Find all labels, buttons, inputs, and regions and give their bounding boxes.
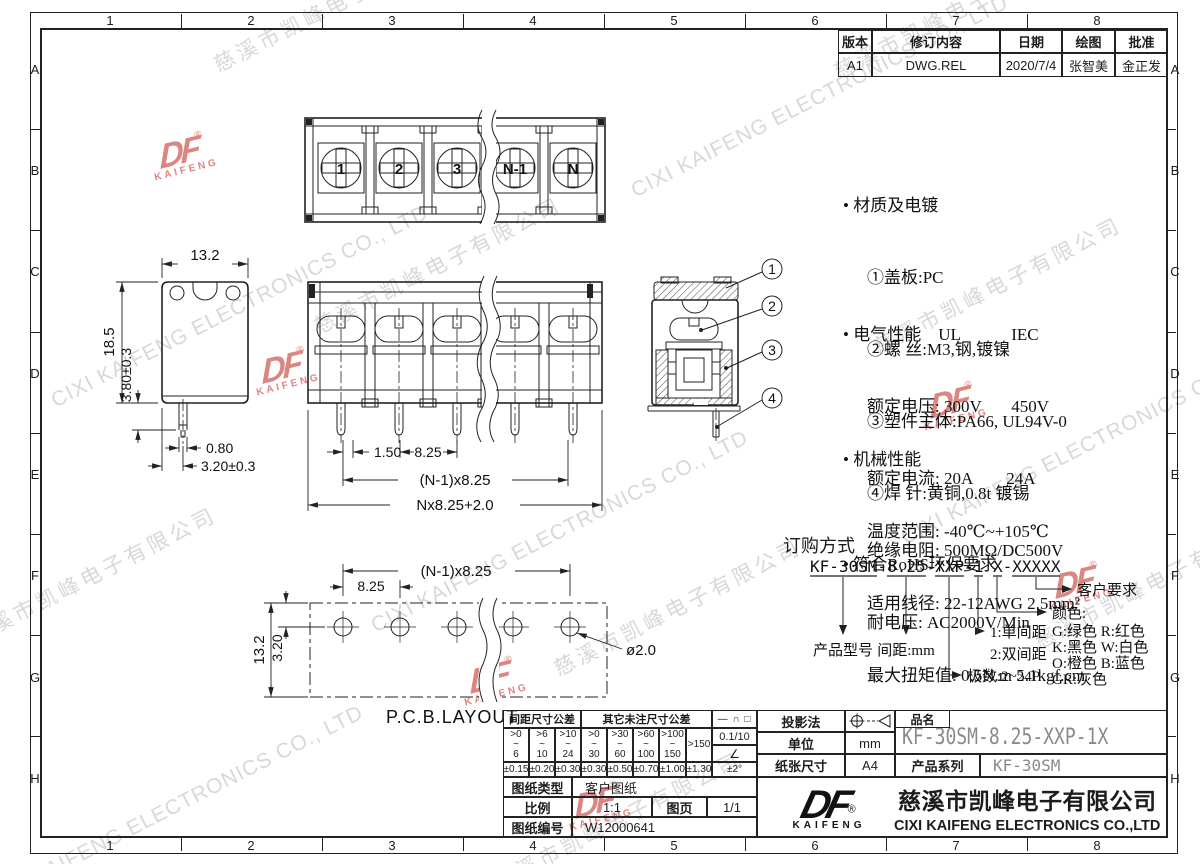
drawing-type-label: 图纸类型 <box>503 777 572 797</box>
series-value: KF-30SM <box>980 754 1168 777</box>
angle-symbol: ∠ <box>712 745 757 762</box>
dim-text: 3.20±0.3 <box>201 458 256 474</box>
revision-header: 版本 <box>838 30 872 53</box>
pcb-layout-view: (N-1)x8.25 8.25 13.2 3.20 ø2.0 P.C.B.LAY… <box>251 563 656 727</box>
revision-value: 金正发 <box>1115 53 1168 77</box>
end-view: 1 2 3 4 <box>648 259 782 444</box>
revision-value: 2020/7/4 <box>1000 53 1062 77</box>
position-label: 3 <box>453 161 461 178</box>
callout-label: 3 <box>768 342 776 358</box>
paper-value: A4 <box>845 754 895 777</box>
dim-text: 13.2 <box>251 635 268 664</box>
product-name-value: KF-30SM-8.25-XXP-1X <box>902 725 1108 750</box>
revision-header: 绘图 <box>1062 30 1115 53</box>
scale-label: 比例 <box>503 797 572 817</box>
callout-label: 4 <box>768 390 776 406</box>
mechanical-title: • 机械性能 <box>843 448 1085 472</box>
position-label: N <box>568 161 579 178</box>
angle-tol: ±2° <box>712 762 757 777</box>
pcb-layout-label: P.C.B.LAYOUT <box>386 707 518 727</box>
tol-value: ±1.30 <box>686 762 712 777</box>
series-label: 产品系列 <box>895 754 980 777</box>
company-name-en: CIXI KAIFENG ELECTRONICS CO.,LTD <box>894 818 1160 834</box>
tol-range: >30 ~ 60 <box>607 728 633 762</box>
position-label: 2 <box>395 161 403 178</box>
first-angle-projection-icon <box>847 713 893 729</box>
tol-value: ±0.30 <box>581 762 607 777</box>
other-tol-header: 其它未注尺寸公差 <box>581 710 712 728</box>
ordering-custom-label: 客户要求 <box>1077 582 1137 599</box>
projection-symbol <box>845 710 895 732</box>
unit-label: 单位 <box>757 732 845 754</box>
electrical-title: • 电气性能 UL IEC <box>843 323 1063 347</box>
unit-value: mm <box>845 732 895 754</box>
tol-value: ±0.15 <box>503 762 529 777</box>
front-view: 1.50 8.25 (N-1)x8.25 Nx8.25+2.0 <box>308 276 602 514</box>
tol-range: >0 ~ 30 <box>581 728 607 762</box>
dim-text: 3.80±0.3 <box>118 348 134 403</box>
tol-value: ±1.00 <box>659 762 686 777</box>
flatness-tol: 0.1/10 <box>712 728 757 745</box>
tol-value: ±0.70 <box>633 762 659 777</box>
tol-value: ±0.50 <box>607 762 633 777</box>
sheet-label: 图页 <box>652 797 707 817</box>
geometry-symbols: — ∩ □ <box>712 710 757 728</box>
company-logo: DF® KAIFENG <box>764 785 894 831</box>
revision-value: 张智美 <box>1062 53 1115 77</box>
revision-header: 日期 <box>1000 30 1062 53</box>
tol-range: >100 ~ 150 <box>659 728 686 762</box>
drawing-number-value: W12000641 <box>572 817 757 838</box>
side-view: 13.2 18.5 3.80±0.3 0.80 3.20±0.3 <box>101 247 256 474</box>
drawing-number-label: 图纸编号 <box>503 817 572 838</box>
materials-title: • 材质及电镀 <box>843 194 1067 218</box>
dim-text: (N-1)x8.25 <box>421 563 492 580</box>
dim-text: 18.5 <box>101 327 118 356</box>
revision-value: DWG.REL <box>872 53 1000 77</box>
dim-text: 8.25 <box>357 578 384 594</box>
drawing-sheet: 慈溪市凯峰电子有限公司 慈溪市凯峰电子有限公司 CIXI KAIFENG ELE… <box>0 0 1200 864</box>
dim-text: 0.80 <box>206 440 233 456</box>
callout-label: 1 <box>768 261 776 277</box>
revision-value: A1 <box>838 53 872 77</box>
paper-label: 纸张尺寸 <box>757 754 845 777</box>
dim-text: 13.2 <box>190 247 219 264</box>
scale-value: 1:1 <box>572 797 652 817</box>
dim-text: ø2.0 <box>626 642 656 659</box>
projection-label: 投影法 <box>757 710 845 732</box>
dim-text: (N-1)x8.25 <box>420 472 491 489</box>
dim-text: Nx8.25+2.0 <box>416 497 493 514</box>
revision-header: 修订内容 <box>872 30 1000 53</box>
pitch-tol-header: 间距尺寸公差 <box>503 710 581 728</box>
tol-range: >10 ~ 24 <box>555 728 581 762</box>
drawing-type-value: 客户图纸 <box>572 777 757 797</box>
ordering-title: 订购方式 <box>783 532 855 558</box>
dim-text: 8.25 <box>414 444 441 460</box>
dim-text: 1.50 <box>374 444 401 460</box>
dim-text: 3.20 <box>269 634 285 661</box>
company-name-cn: 慈溪市凯峰电子有限公司 <box>894 782 1160 816</box>
callout-label: 2 <box>768 298 776 314</box>
tol-range: >0 ~ 6 <box>503 728 529 762</box>
top-view: 1 2 3 N-1 N <box>305 110 605 224</box>
revision-header: 批准 <box>1115 30 1168 53</box>
ordering-code: KF-30SM-8.25-XXP-1 X-XXXXX <box>810 557 1060 576</box>
note-line: 最大扭矩值: 0.5N.m 5.1kgf.cm <box>843 664 1085 688</box>
company-block: 慈溪市凯峰电子有限公司 CIXI KAIFENG ELECTRONICS CO.… <box>894 782 1160 834</box>
tol-value: ±0.30 <box>555 762 581 777</box>
position-label: N-1 <box>503 161 527 178</box>
product-name-label: 品名 <box>895 710 950 728</box>
tol-range: >150 <box>686 728 712 762</box>
position-label: 1 <box>337 161 345 178</box>
df-logo-icon: DF <box>797 785 852 825</box>
tol-value: ±0.20 <box>529 762 555 777</box>
tol-range: >60 ~ 100 <box>633 728 659 762</box>
tol-range: >6 ~ 10 <box>529 728 555 762</box>
sheet-value: 1/1 <box>707 797 757 817</box>
